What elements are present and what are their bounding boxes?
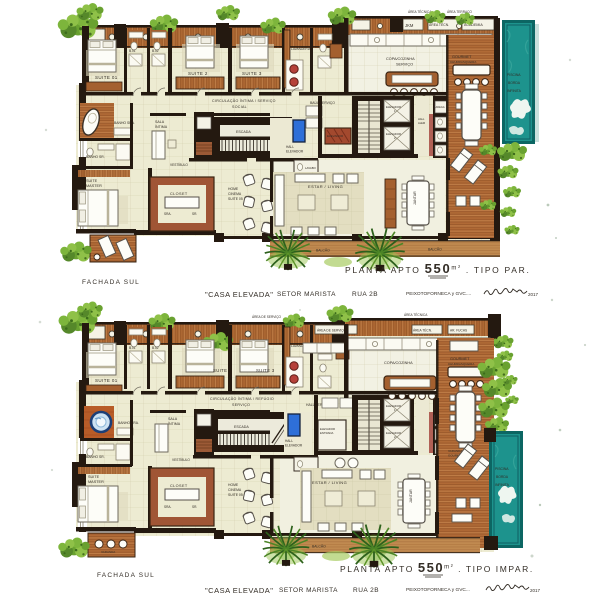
svg-text:B.01: B.01 xyxy=(129,346,136,350)
svg-text:MASTER: MASTER xyxy=(86,184,102,188)
svg-text:VESTÍBULO: VESTÍBULO xyxy=(170,163,188,167)
svg-text:JKM: JKM xyxy=(405,23,414,28)
svg-text:GOURMET: GOURMET xyxy=(450,357,470,361)
svg-text:BORDA: BORDA xyxy=(508,81,521,85)
svg-text:COPA/COZINHA: COPA/COZINHA xyxy=(386,57,415,61)
svg-text:INFINITA: INFINITA xyxy=(495,483,510,487)
svg-text:HALL: HALL xyxy=(286,145,294,149)
svg-text:INFINITA: INFINITA xyxy=(507,89,522,93)
svg-text:COPA/COZINHA: COPA/COZINHA xyxy=(384,361,413,365)
svg-text:B.02: B.02 xyxy=(152,346,159,350)
svg-text:SERVIÇO: SERVIÇO xyxy=(396,63,413,67)
svg-text:SR.: SR. xyxy=(192,505,197,509)
svg-text:BORDA: BORDA xyxy=(496,475,509,479)
svg-text:SERVIÇO: SERVIÇO xyxy=(232,403,250,407)
svg-text:BANHO SR.: BANHO SR. xyxy=(86,455,105,459)
svg-text:VARANDA: VARANDA xyxy=(448,449,462,453)
svg-text:ÁREA TÉCN.: ÁREA TÉCN. xyxy=(413,328,432,333)
svg-text:GOURMET: GOURMET xyxy=(452,55,472,59)
svg-text:BANHO SRA.: BANHO SRA. xyxy=(118,421,139,425)
svg-text:CHURRASQUEIRA: CHURRASQUEIRA xyxy=(448,362,474,366)
svg-text:FACHADA SUL: FACHADA SUL xyxy=(97,572,155,579)
svg-text:SALA: SALA xyxy=(168,417,178,421)
svg-text:FACHADA SUL: FACHADA SUL xyxy=(82,279,140,286)
svg-text:SR.: SR. xyxy=(192,212,197,216)
svg-text:VESTÍBULO: VESTÍBULO xyxy=(172,458,190,462)
svg-text:2017: 2017 xyxy=(528,292,539,297)
svg-text:"CASA ELEVADA": "CASA ELEVADA" xyxy=(205,586,273,595)
svg-text:PISCINA: PISCINA xyxy=(495,467,509,471)
svg-text:SUITE 05: SUITE 05 xyxy=(228,197,243,201)
svg-text:ADEGA: ADEGA xyxy=(436,105,445,109)
svg-text:HOME: HOME xyxy=(228,483,239,487)
svg-text:SRA.: SRA. xyxy=(164,505,172,509)
svg-text:BALCÃO: BALCÃO xyxy=(428,247,442,252)
svg-text:SOCIAL: SOCIAL xyxy=(232,105,247,109)
svg-text:MASTER: MASTER xyxy=(88,480,104,484)
svg-text:BAÚL SERVIÇO: BAÚL SERVIÇO xyxy=(310,100,335,105)
svg-text:SUITE 01: SUITE 01 xyxy=(95,378,118,383)
svg-text:CHURRASQUEIRA: CHURRASQUEIRA xyxy=(450,60,476,64)
svg-text:ALEM: ALEM xyxy=(418,121,425,125)
svg-text:VARANDA: VARANDA xyxy=(101,550,115,554)
svg-text:SETOR MARISTA: SETOR MARISTA xyxy=(277,291,336,298)
svg-text:B.02: B.02 xyxy=(152,49,159,53)
svg-text:LAVABO: LAVABO xyxy=(305,166,317,170)
svg-text:SETOR MARISTA: SETOR MARISTA xyxy=(279,587,338,594)
svg-text:CINEMA: CINEMA xyxy=(228,192,242,196)
svg-text:ELEVADOR: ELEVADOR xyxy=(286,150,304,154)
svg-text:JANTAR: JANTAR xyxy=(409,489,413,503)
svg-text:SUITE 3: SUITE 3 xyxy=(256,368,275,373)
svg-text:ÍNTIMA: ÍNTIMA xyxy=(155,125,168,129)
svg-text:JANTAR: JANTAR xyxy=(413,191,417,205)
svg-text:HALL: HALL xyxy=(285,439,293,443)
svg-text:ESTAR / LIVING: ESTAR / LIVING xyxy=(312,480,347,485)
svg-text:HALL: HALL xyxy=(418,117,425,121)
svg-text:CLOSET: CLOSET xyxy=(170,192,188,196)
svg-text:HOME: HOME xyxy=(228,187,239,191)
svg-text:ÁREA TÉCNICA: ÁREA TÉCNICA xyxy=(404,312,428,317)
svg-text:ELEVADOR: ELEVADOR xyxy=(327,134,344,138)
svg-text:RUA 2B: RUA 2B xyxy=(352,291,378,298)
svg-text:CINEMA: CINEMA xyxy=(228,488,242,492)
svg-text:SUITE: SUITE xyxy=(86,179,98,183)
svg-text:CIRCULAÇÃO ÍNTIMA / SERVIÇO: CIRCULAÇÃO ÍNTIMA / SERVIÇO xyxy=(212,98,276,103)
svg-text:SUITE 3: SUITE 3 xyxy=(242,71,262,76)
svg-text:ESCADA: ESCADA xyxy=(234,425,249,429)
svg-text:SUITE 05: SUITE 05 xyxy=(228,493,243,497)
svg-text:ÍNTIMA: ÍNTIMA xyxy=(168,422,181,426)
svg-text:ESTAR / LIVING: ESTAR / LIVING xyxy=(308,184,343,189)
svg-text:SUITE 2: SUITE 2 xyxy=(188,71,208,76)
svg-text:PISCINA: PISCINA xyxy=(507,73,521,77)
svg-text:2017: 2017 xyxy=(530,588,541,593)
svg-text:B.01: B.01 xyxy=(129,49,136,53)
svg-text:RUA 2B: RUA 2B xyxy=(353,587,379,594)
svg-text:ESCADA: ESCADA xyxy=(236,130,251,134)
svg-text:PEIXOTOFORNECA y GVC...: PEIXOTOFORNECA y GVC... xyxy=(406,587,470,593)
svg-text:BALCÃO: BALCÃO xyxy=(312,544,326,549)
svg-text:BANHO SR.: BANHO SR. xyxy=(86,155,105,159)
svg-text:ELEVADOR: ELEVADOR xyxy=(285,444,303,448)
svg-text:PEIXOTOFORNECA y GVC....: PEIXOTOFORNECA y GVC.... xyxy=(406,291,471,297)
svg-text:"CASA ELEVADA": "CASA ELEVADA" xyxy=(205,290,273,299)
svg-text:SALA: SALA xyxy=(155,120,165,124)
svg-text:ÁREA DE SERVIÇO: ÁREA DE SERVIÇO xyxy=(317,329,347,333)
svg-text:SUITE: SUITE xyxy=(88,475,100,479)
svg-text:ENTRADA: ENTRADA xyxy=(320,431,333,435)
svg-text:ÁREA DE SERVIÇO: ÁREA DE SERVIÇO xyxy=(252,315,282,319)
svg-text:AR. FUCHS: AR. FUCHS xyxy=(450,329,467,333)
svg-text:LAVANDERIA: LAVANDERIA xyxy=(291,47,312,51)
svg-text:CIRCULAÇÃO ÍNTIMA / REFÚGIO: CIRCULAÇÃO ÍNTIMA / REFÚGIO xyxy=(210,396,274,401)
svg-text:ÁREA TÉCNICA: ÁREA TÉCNICA xyxy=(408,9,432,14)
svg-text:BALCÃO: BALCÃO xyxy=(316,248,330,253)
svg-text:SUITE 01: SUITE 01 xyxy=(95,75,118,80)
svg-text:SRA.: SRA. xyxy=(164,212,172,216)
svg-text:CLOSET: CLOSET xyxy=(170,484,188,488)
